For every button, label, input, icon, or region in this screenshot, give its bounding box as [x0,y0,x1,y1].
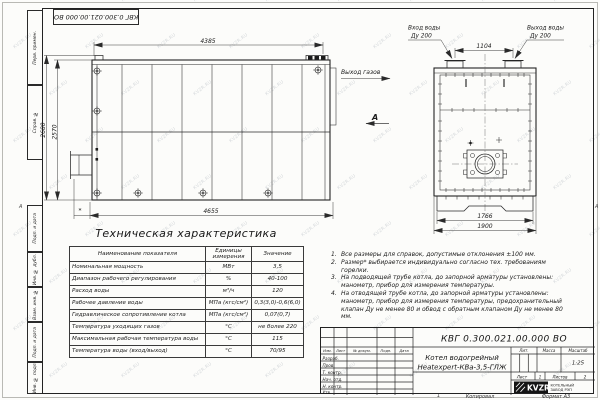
scale-label: Масштаб [568,348,588,353]
drawing-sheet: KVZR.RUKVZR.RUKVZR.RUKVZR.RUKVZR.RUKVZR.… [0,0,600,400]
sig-header-list: Лист [335,349,346,353]
sig-header-dokum: № докум. [352,349,371,353]
dim-4385: 4385 [200,38,215,45]
sheets-label: Листов [552,374,569,379]
company-line2: ЗАВОД РЭП [551,388,573,392]
footer-copied-label: Копировал [450,394,510,400]
water-outlet-dn: Ду 200 [529,34,551,40]
spec-row: Гидравлическое сопротивление котлаМПа (к… [70,310,304,322]
spec-row: Расход водым³/ч120 [70,286,304,298]
dim-2680: 2680 [40,122,47,137]
note-item: 4.На отводящей трубе котла, до запорной … [331,290,573,321]
dim-2570: 2570 [51,124,58,139]
footer-format-label: Формат А3 [526,394,586,400]
spec-row: Максимальная рабочая температура воды°С1… [70,334,304,346]
spec-row: Номинальная мощностьМВт3,5 [70,262,304,274]
gas-outlet-label: Выход газов [341,69,381,76]
water-inlet-dn: Ду 200 [410,34,432,40]
dim-1104: 1104 [476,43,491,50]
sig-row-nachotd: Нач. отд. [323,377,343,382]
sig-header-podp: Подп. [381,349,392,353]
dim-4655: 4655 [203,208,218,215]
note-item: 2.Размер* выбирается индивидуально согла… [331,259,573,275]
boiler-front-view [434,54,536,218]
product-name-line2: Heatexpert-КВа-3,5-ГЛЖ [418,364,507,372]
scale-value: 1:25 [572,361,585,367]
dim-star: * [79,208,82,215]
dim-1766: 1766 [477,213,492,220]
sig-row-razrab: Разраб. [323,356,339,361]
company-line1: КОТЕЛЬНЫЙ [551,382,575,387]
spec-row: Температура уходящих газов°Сне более 220 [70,322,304,334]
title-block-doc-number: КВГ 0.300.021.00.000 ВО [441,335,567,345]
water-outlet-label: Выход воды [527,26,564,32]
spec-header-row: Наименование показателя Единицы измерени… [70,247,304,262]
title-block: КВГ 0.300.021.00.000 ВО Котел водогрейны… [320,327,594,394]
sheets-value: 2 [584,374,587,379]
sig-header-izm: Изм. [323,349,331,353]
spec-row: Рабочее давление водыМПа (кгс/см²)0,3(3,… [70,298,304,310]
sig-row-nkontr: Н. контр. [323,384,343,389]
spec-table: Наименование показателя Единицы измерени… [69,246,304,358]
spec-col-unit: Единицы измерения [206,247,252,262]
spec-col-value: Значение [252,247,304,262]
sheet-value: 1 [539,374,542,379]
mass-label: Масса [543,348,556,353]
kvzr-logo: KVZR [514,382,550,394]
sig-row-utv: Утв. [323,390,332,395]
sheet-label: Лист [516,374,528,379]
sig-row-prov: Пров. [323,363,335,368]
sig-header-data: Дата [398,349,408,353]
front-view-dimensions: Вход воды Ду 200 Выход воды Ду 200 1104 … [408,26,564,235]
note-item: 1.Все размеры для справок, допустимые от… [331,251,573,259]
lit-label: Лит. [518,348,528,353]
spec-row: Диапазон рабочего регулирования%40-100 [70,274,304,286]
spec-col-name: Наименование показателя [70,247,206,262]
boiler-side-view [71,56,337,201]
sig-row-tkontr: Т. контр. [323,370,342,375]
note-item: 3.На подводящей трубе котла, до запорной… [331,274,573,290]
product-name-line1: Котел водогрейный [425,354,499,362]
title-block-grid: КВГ 0.300.021.00.000 ВО Котел водогрейны… [321,328,595,395]
water-inlet-label: Вход воды [408,26,441,32]
dim-1900: 1900 [477,223,492,230]
spec-row: Температура воды (вход/выход)°С70/95 [70,346,304,358]
notes-list: 1.Все размеры для справок, допустимые от… [331,251,573,321]
kvzr-logo-text: KVZR [527,384,550,393]
spec-table-title: Техническая характеристика [69,227,303,240]
view-a-label: А [371,113,378,122]
